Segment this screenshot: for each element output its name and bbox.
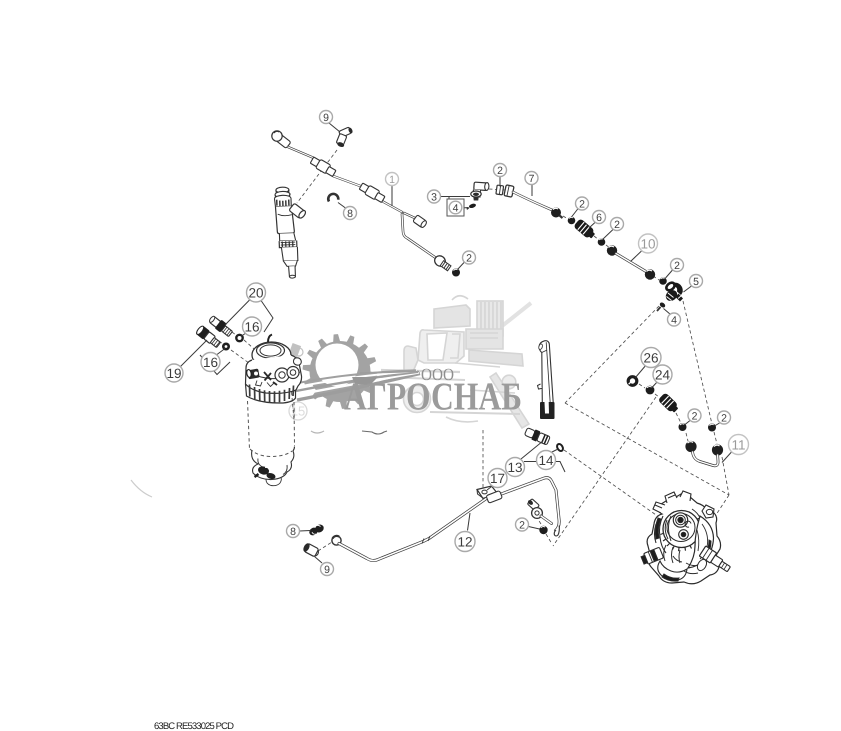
svg-text:17: 17 [490,471,505,486]
svg-text:3: 3 [431,192,437,204]
svg-text:13: 13 [507,460,522,475]
svg-text:8: 8 [347,208,353,220]
svg-text:8: 8 [290,526,296,538]
svg-text:20: 20 [248,286,263,301]
svg-text:2: 2 [721,413,727,425]
svg-text:9: 9 [324,564,330,576]
svg-text:АГРОСНАБ: АГРОСНАБ [344,375,522,419]
svg-text:2: 2 [692,411,698,423]
svg-text:2: 2 [519,520,525,532]
svg-text:10: 10 [640,237,655,252]
svg-text:24: 24 [655,368,671,383]
svg-text:14: 14 [538,453,554,468]
svg-text:11: 11 [731,438,745,453]
svg-text:2: 2 [497,165,503,177]
svg-text:16: 16 [203,355,218,370]
svg-text:9: 9 [323,112,329,124]
svg-text:16: 16 [244,320,259,335]
svg-text:19: 19 [166,366,181,381]
svg-text:2: 2 [614,219,620,231]
svg-text:12: 12 [457,535,472,550]
svg-text:6: 6 [596,212,602,224]
svg-text:26: 26 [643,351,658,366]
svg-text:2: 2 [579,199,585,211]
svg-text:2: 2 [674,260,680,272]
svg-text:2: 2 [466,253,472,265]
svg-text:5: 5 [693,276,699,288]
svg-text:1: 1 [389,174,395,186]
svg-text:7: 7 [529,173,535,185]
svg-text:4: 4 [671,315,677,327]
svg-text:63BC RE533025 PCD: 63BC RE533025 PCD [154,721,234,731]
svg-text:4: 4 [453,203,459,215]
